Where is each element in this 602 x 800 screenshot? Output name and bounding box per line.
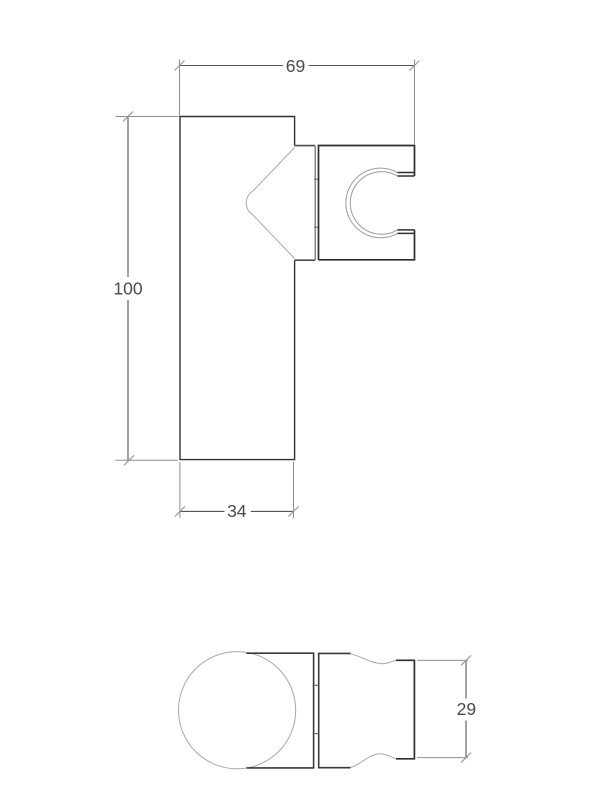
svg-text:69: 69	[286, 56, 305, 76]
svg-text:34: 34	[227, 501, 247, 521]
svg-text:29: 29	[457, 699, 476, 719]
svg-text:100: 100	[113, 279, 142, 299]
